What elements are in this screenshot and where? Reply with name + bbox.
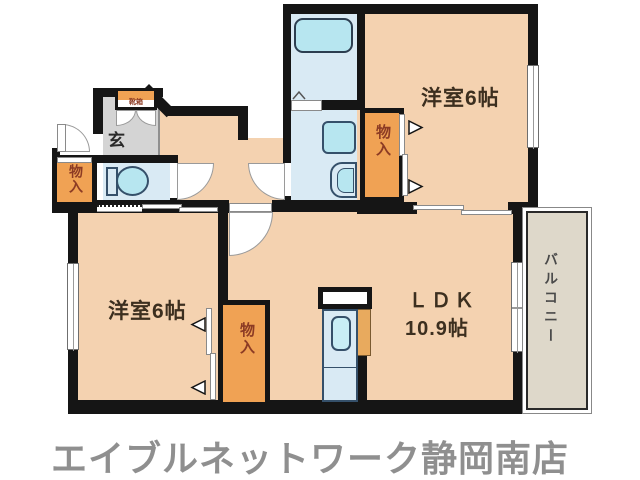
closet-top-door [399, 114, 405, 156]
wall-top-room-bottom-left [357, 202, 417, 214]
bath-door [291, 100, 322, 111]
kitchen-counter-box [318, 287, 372, 309]
wall-entrance-stub [93, 88, 103, 134]
bath-door-fold-icon [292, 90, 306, 100]
ldk-door-leaf [229, 203, 272, 212]
kitchen-sink-icon [331, 316, 351, 351]
closet-left-label: 物入 [66, 164, 86, 194]
closet-bottom-door [210, 353, 216, 400]
vanity-sink-icon [330, 162, 357, 198]
wall-bottom [68, 400, 522, 414]
kitchen-unit [322, 309, 358, 402]
window-bottom-room [67, 263, 79, 350]
floor-plan: 物入 物入 物入 靴箱 バルコニー 洋室6帖 洋室6帖 ＬＤＫ 10.9帖 [0, 0, 640, 480]
bottom-room-hatched-track [97, 205, 142, 212]
wall-top [283, 4, 538, 14]
ldk-label-line1: ＬＤＫ [408, 284, 477, 313]
top-room-ldk-sliding-door [461, 210, 512, 215]
bottom-room-sliding-door [179, 207, 218, 212]
western-room-top-label: 洋室6帖 [421, 82, 500, 112]
wall-toilet-top [95, 155, 178, 163]
top-room-ldk-sliding-door [413, 205, 464, 210]
closet-top-label: 物入 [372, 124, 393, 158]
closet-top-arrow-icon [408, 120, 424, 135]
entrance-label: 玄 [108, 126, 125, 151]
bathtub-icon [294, 18, 353, 53]
kitchen-fridge-space [357, 309, 371, 356]
exterior-void [248, 106, 283, 138]
closet-bottom-arrow-icon [190, 380, 206, 395]
exterior-void [158, 0, 283, 106]
shoe-cabinet-label: 靴箱 [129, 99, 143, 106]
wall-hallway-corner [238, 116, 248, 140]
wall-hallway-top [168, 106, 248, 116]
wall-bath-washroom-divider [322, 100, 357, 110]
store-name: エイブルネットワーク静岡南店 [40, 430, 580, 480]
closet-left-door [57, 157, 92, 163]
closet-bottom-arrow-icon [190, 317, 206, 332]
bottom-room-sliding-door [142, 204, 182, 209]
balcony-label: バルコニー [541, 252, 561, 347]
closet-bottom-label: 物入 [236, 322, 257, 356]
wall-bath-left [283, 4, 291, 163]
wall-washroom-bottom [272, 200, 365, 212]
wall-bath-right [357, 4, 365, 110]
wall-kitchen-stub [357, 356, 367, 402]
shoe-cabinet: 靴箱 [115, 88, 157, 110]
western-room-bottom-label: 洋室6帖 [108, 295, 187, 325]
toilet-bowl-icon [116, 166, 149, 196]
wall-bottomroom-ldk [218, 202, 228, 306]
closet-bottom-door [206, 308, 212, 355]
washing-machine-icon [322, 121, 356, 154]
entry-door-leaf [57, 124, 66, 152]
closet-top-arrow-icon [408, 179, 424, 194]
window-top-room [527, 65, 539, 148]
ldk-label-line2: 10.9帖 [405, 312, 469, 341]
